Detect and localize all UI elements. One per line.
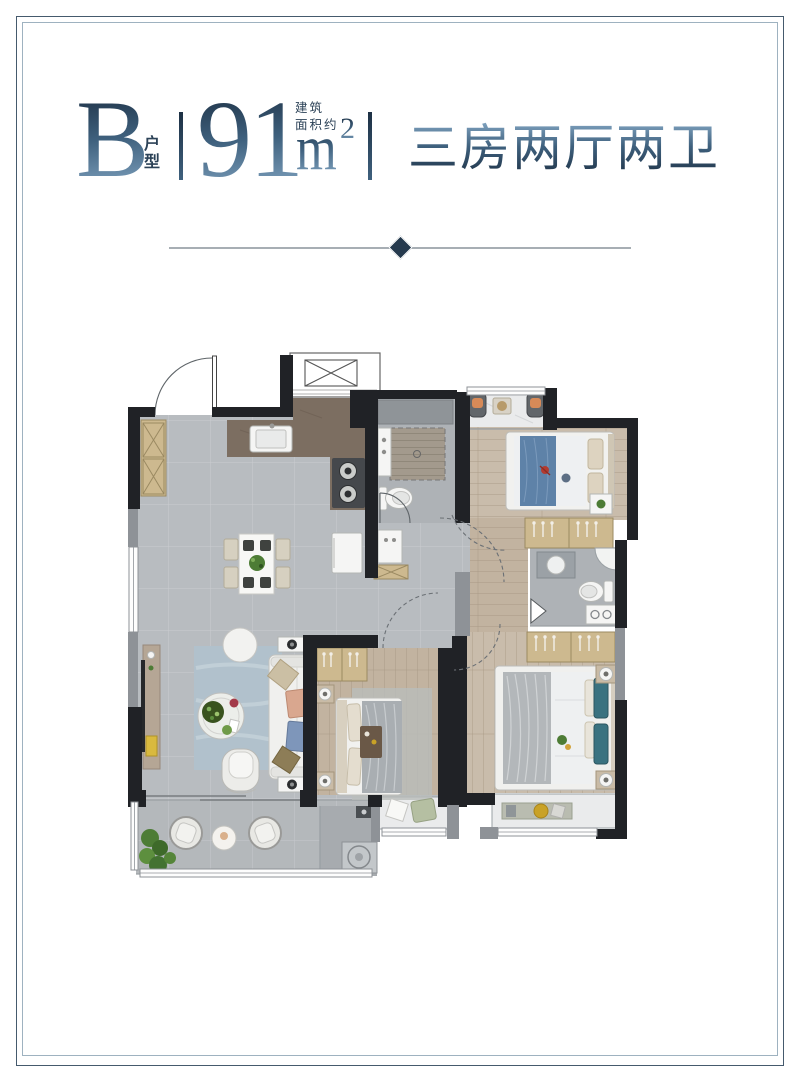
bedroom2-bed [336, 698, 402, 795]
tv-console [141, 645, 160, 769]
cabinet [332, 533, 362, 573]
shoe-cabinet [141, 420, 166, 496]
table-plant [249, 555, 265, 571]
master-wardrobe [527, 632, 615, 662]
toilet-1 [379, 487, 413, 510]
washbasin [378, 530, 402, 563]
brochure-page: B 户型 91 建筑 面积约 m 2 三房两厅两卫 [0, 0, 800, 1082]
floor-plan [0, 0, 800, 1082]
toilet-2 [579, 581, 614, 602]
armchair [222, 749, 259, 793]
master-bay-window [502, 803, 572, 819]
entry-door-swing-arc [155, 358, 212, 415]
bedroom2-wardrobe [317, 648, 367, 681]
tray-table [198, 693, 244, 739]
coffee-table [223, 628, 257, 662]
bedroom1-wardrobe [525, 518, 613, 548]
